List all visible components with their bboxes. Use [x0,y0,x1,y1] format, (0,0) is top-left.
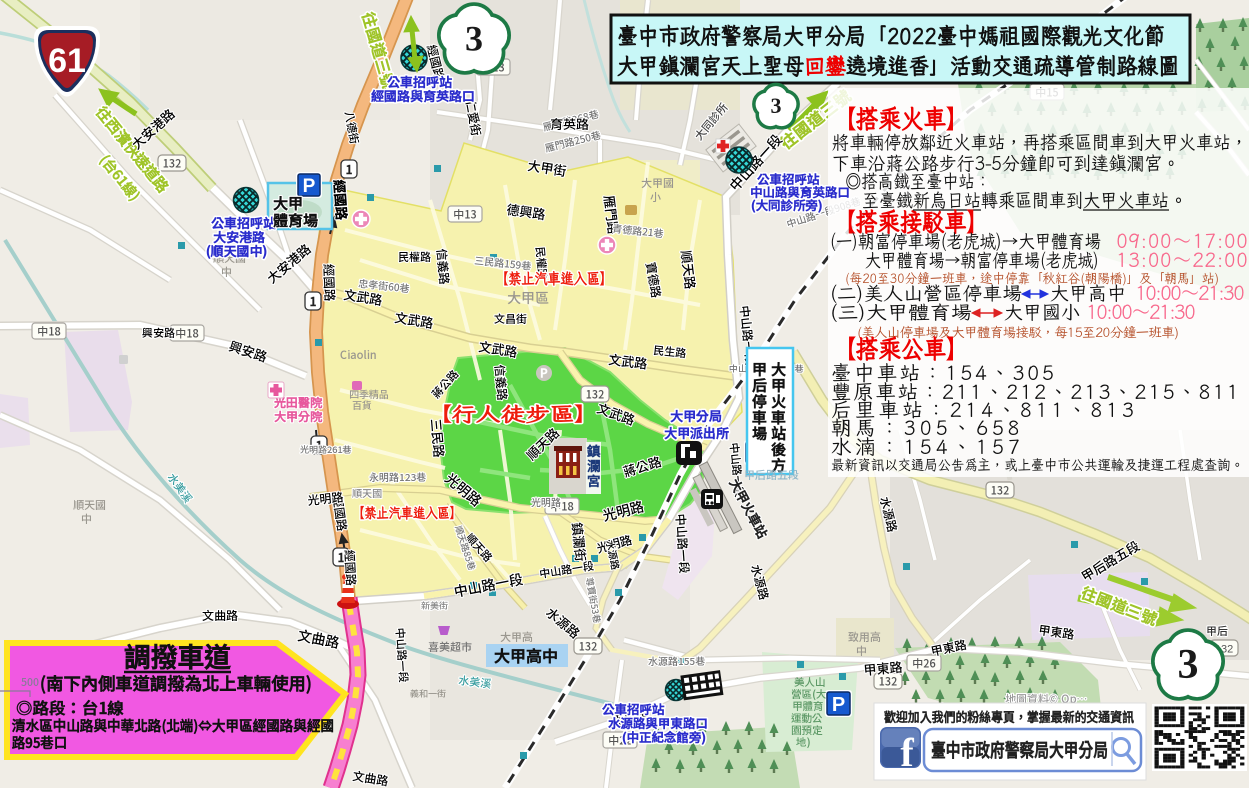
svg-text:光明路: 光明路 [530,494,561,509]
svg-text:61: 61 [48,42,86,80]
svg-text:(三)大甲體育場: (三)大甲體育場 [830,300,972,325]
svg-text:(中正紀念館旁): (中正紀念館旁) [622,727,706,746]
svg-text:最新資訊以交通局公告為主，或上臺中市公共運輸及捷運工程處查詢: 最新資訊以交通局公告為主，或上臺中市公共運輸及捷運工程處查詢。 [831,456,1244,475]
svg-text:Ciaolin: Ciaolin [340,347,377,363]
svg-text:臺中市政府警察局大甲分局: 臺中市政府警察局大甲分局 [931,736,1108,763]
svg-text:經國路: 經國路 [341,549,360,586]
svg-text:甲東路: 甲東路 [863,657,904,679]
svg-text:經國路與育英路口: 經國路與育英路口 [371,86,475,105]
svg-text:中: 中 [221,264,232,280]
svg-text:百貨: 百貨 [352,397,372,412]
svg-text:3: 3 [771,93,782,118]
svg-text:育英路: 育英路 [550,114,589,133]
svg-text:1: 1 [310,293,317,310]
svg-text:大甲區: 大甲區 [507,288,549,308]
svg-text:經國路: 經國路 [330,179,353,221]
svg-text:10:00～21:30: 10:00～21:30 [1086,298,1196,325]
svg-text:(南下內側車道調撥為北上車輛使用): (南下內側車道調撥為北上車輛使用) [40,671,312,696]
svg-text:甲后: 甲后 [1206,623,1228,639]
svg-text:文曲路: 文曲路 [202,607,238,624]
svg-text:【禁止汽車進入區】: 【禁止汽車進入區】 [495,269,613,289]
svg-text:(大同診所旁): (大同診所旁) [751,195,822,214]
svg-text:1: 1 [346,161,353,178]
svg-text:順天國: 順天國 [352,485,382,500]
svg-text:信義路: 信義路 [433,248,453,285]
svg-text:大甲派出所: 大甲派出所 [664,423,729,442]
svg-text:132: 132 [991,483,1011,499]
svg-text:f: f [900,730,914,775]
svg-text:P: P [540,365,548,382]
svg-text:義和一街: 義和一街 [410,687,446,700]
svg-text:水源路155巷: 水源路155巷 [648,653,705,668]
svg-text:體育場: 體育場 [272,210,319,231]
svg-text:臺中市政府警察局大甲分局「2022臺中媽祖國際觀光文化節: 臺中市政府警察局大甲分局「2022臺中媽祖國際觀光文化節 [617,20,1165,51]
svg-text:大甲分院: 大甲分院 [274,408,322,425]
svg-text:文昌街: 文昌街 [494,311,527,327]
svg-text:喜美超市: 喜美超市 [428,639,472,655]
svg-text:小: 小 [650,189,661,205]
svg-text:大甲高中: 大甲高中 [494,643,558,667]
svg-text:宮: 宮 [587,470,601,490]
svg-text:永明路123巷: 永明路123巷 [369,469,426,484]
svg-text:遶境進香」活動交通疏導管制路線圖: 遶境進香」活動交通疏導管制路線圖 [846,50,1179,81]
svg-text:P: P [832,694,845,716]
svg-text:3: 3 [1178,642,1199,688]
svg-text:回鑾: 回鑾 [804,50,847,81]
svg-text:【禁止汽車進入區】: 【禁止汽車進入區】 [352,504,462,523]
svg-text:500: 500 [21,675,40,690]
svg-text:光明路261巷: 光明路261巷 [300,443,352,456]
svg-text:中: 中 [81,511,92,527]
svg-text:大甲鎮瀾宮天上聖母: 大甲鎮瀾宮天上聖母 [617,50,805,81]
svg-text:調撥車道: 調撥車道 [124,636,231,675]
svg-text:地): 地) [796,735,810,750]
svg-text:3: 3 [465,18,483,58]
svg-text:(順天國中): (順天國中) [206,241,267,260]
svg-text:歡迎加入我們的粉絲專頁，掌握最新的交通資訊: 歡迎加入我們的粉絲專頁，掌握最新的交通資訊 [883,706,1135,726]
svg-text:中18: 中18 [175,326,199,342]
svg-text:甲后路五段: 甲后路五段 [744,467,799,483]
svg-text:鎮瀾街: 鎮瀾街 [568,521,591,562]
svg-text:【行人徒步區】: 【行人徒步區】 [427,400,599,427]
svg-text:中: 中 [856,643,867,659]
svg-text:民權路: 民權路 [398,249,431,265]
svg-text:中18: 中18 [37,324,61,340]
svg-text:路95巷口: 路95巷口 [11,732,67,753]
svg-text:信義路: 信義路 [491,364,511,401]
svg-text:132: 132 [579,639,599,655]
svg-text:中13: 中13 [453,207,477,223]
svg-text:經國路: 經國路 [320,263,340,302]
svg-text:132: 132 [163,156,183,172]
svg-text:P: P [303,176,316,197]
svg-text:場: 場 [752,423,768,444]
svg-text:興安路: 興安路 [142,325,175,341]
svg-text:大甲國小: 大甲國小 [1004,300,1080,325]
svg-text:新美街: 新美街 [421,599,448,612]
